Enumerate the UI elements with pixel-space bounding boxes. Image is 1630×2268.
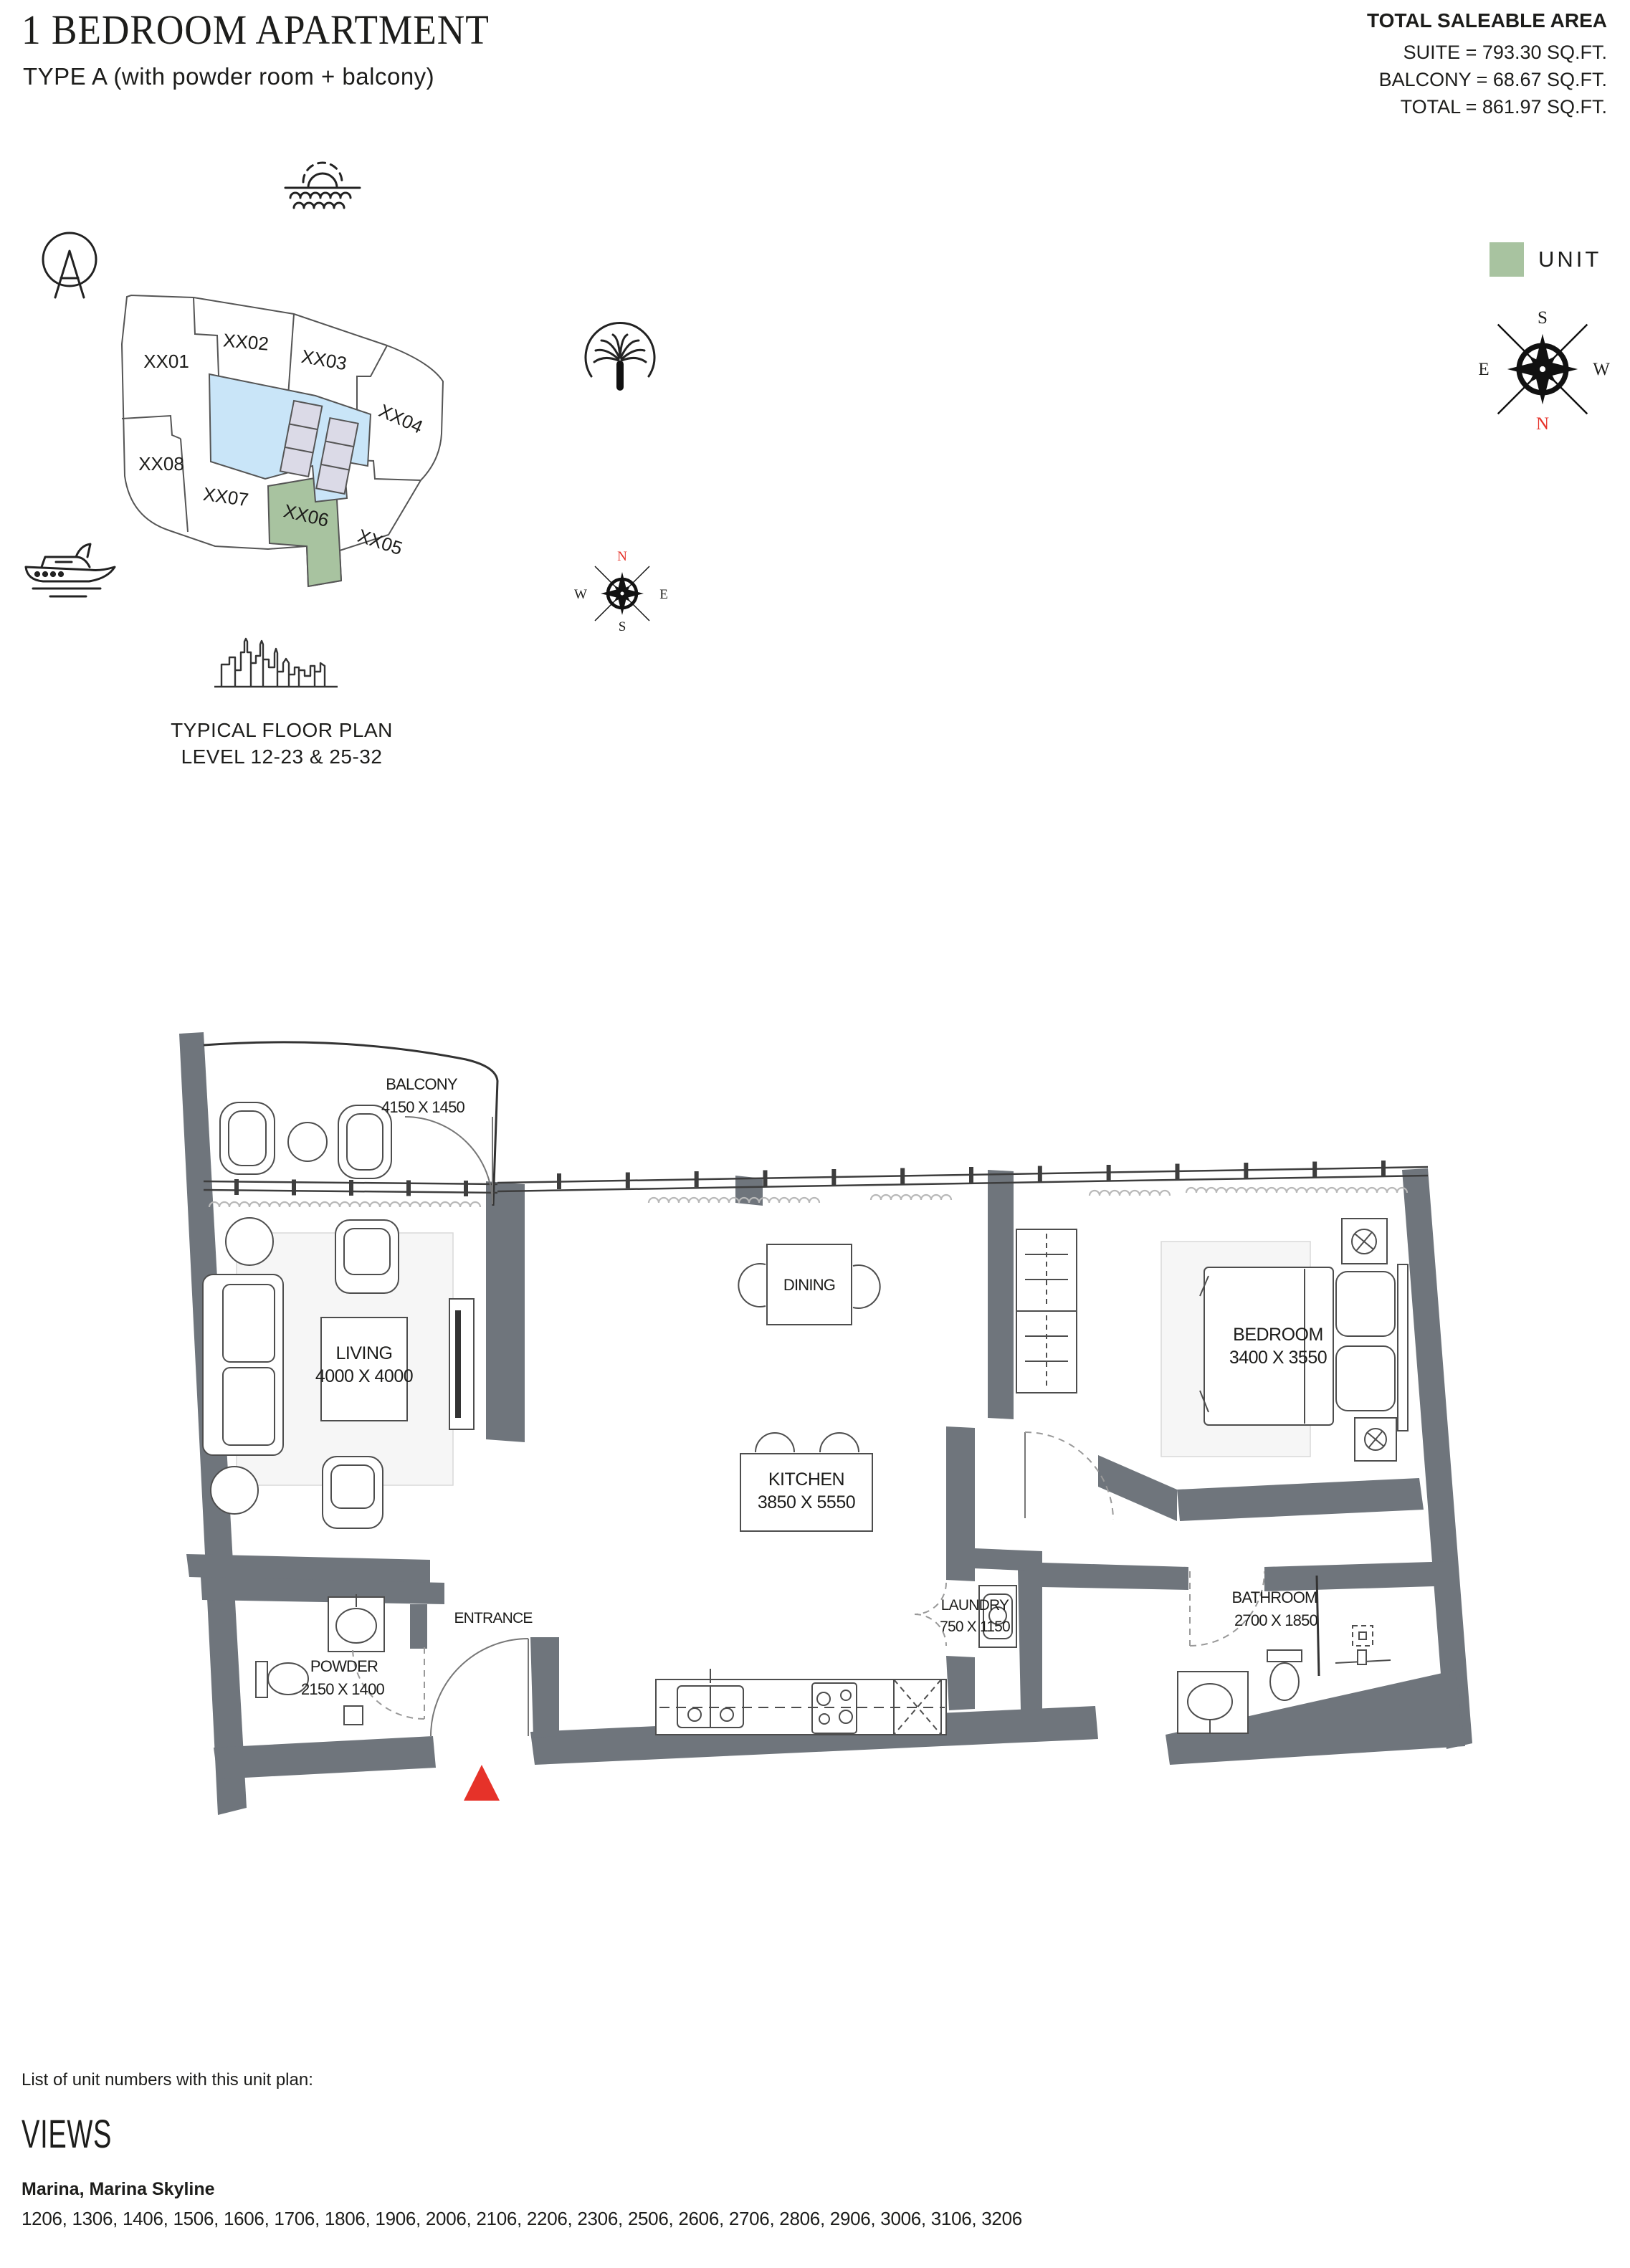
shower-drain (1353, 1626, 1373, 1646)
palm-island-icon (586, 323, 654, 391)
laundry: LAUNDRY 750 X 1150 (915, 1583, 1016, 1647)
insulation-squiggle (649, 1198, 819, 1203)
yacht-icon (26, 544, 115, 596)
views-heading: VIEWS (22, 2110, 112, 2157)
room-dims-powder: 2150 X 1400 (301, 1680, 385, 1698)
skyline-icon (211, 634, 340, 692)
insulation-squiggle (1186, 1188, 1407, 1193)
area-balcony: BALCONY = 68.67 SQ.FT. (1367, 66, 1607, 93)
sunset-icon (285, 163, 360, 208)
entrance-door-swing (431, 1639, 528, 1736)
compass-small-top: N (617, 549, 627, 564)
compass-small-right: E (659, 587, 668, 602)
caption-line-2: LEVEL 12-23 & 25-32 (106, 743, 457, 770)
area-suite: SUITE = 793.30 SQ.FT. (1367, 39, 1607, 66)
insulation-squiggle (871, 1195, 951, 1200)
bar-stool (756, 1433, 794, 1452)
floorplan-brochure-page: { "header": { "title": "1 BEDROOM APARTM… (0, 0, 1630, 2268)
key-plan-label-xx02: XX02 (222, 329, 270, 354)
unit-legend-swatch (1490, 242, 1524, 277)
insulation-squiggle (209, 1202, 480, 1207)
key-plan-label-xx08: XX08 (138, 453, 184, 475)
laundry-bifold-door (915, 1583, 946, 1646)
headboard (1398, 1264, 1408, 1431)
bar-stool (820, 1433, 859, 1452)
tv-console (449, 1299, 474, 1429)
dining-chair (738, 1264, 766, 1307)
bathroom-door-swing (1190, 1571, 1264, 1646)
room-label-bedroom: BEDROOM (1233, 1325, 1323, 1345)
saleable-area-block: TOTAL SALEABLE AREA SUITE = 793.30 SQ.FT… (1367, 7, 1607, 120)
entrance-marker-triangle (464, 1765, 500, 1801)
room-dims-kitchen: 3850 X 5550 (758, 1492, 855, 1512)
area-heading: TOTAL SALEABLE AREA (1367, 7, 1607, 34)
window-mullions-main (559, 1161, 1383, 1189)
room-label-balcony: BALCONY (386, 1075, 458, 1093)
armchair (335, 1220, 399, 1293)
key-plan-building: XX01 XX02 XX03 XX04 XX05 XX06 XX07 XX08 (122, 295, 443, 586)
kitchen: KITCHEN 3850 X 5550 (656, 1433, 946, 1735)
room-label-powder: POWDER (310, 1657, 378, 1675)
tv-screen (455, 1310, 461, 1418)
key-plan-label-xx01: XX01 (143, 351, 189, 372)
dining-chair (853, 1265, 880, 1308)
side-table (211, 1467, 258, 1514)
compass-main-top: S (1538, 308, 1548, 328)
caption-line-1: TYPICAL FLOOR PLAN (106, 717, 457, 743)
powder-toilet-tank (256, 1662, 267, 1697)
room-dims-living: 4000 X 4000 (315, 1366, 413, 1386)
powder-room: POWDER 2150 X 1400 (256, 1594, 424, 1725)
living-room: LIVING 4000 X 4000 (203, 1218, 474, 1528)
page-subtitle: TYPE A (with powder room + balcony) (23, 63, 434, 90)
shower-head (1358, 1650, 1366, 1664)
room-label-kitchen: KITCHEN (768, 1469, 844, 1490)
key-plan-label-xx05: XX05 (355, 525, 405, 559)
room-label-living: LIVING (336, 1343, 393, 1363)
page-title: 1 BEDROOM APARTMENT (22, 6, 490, 54)
balcony-table (288, 1123, 327, 1161)
key-plan-caption: TYPICAL FLOOR PLAN LEVEL 12-23 & 25-32 (106, 717, 457, 770)
entrance: ENTRANCE (431, 1610, 533, 1801)
key-plan-label-xx07: XX07 (202, 483, 250, 511)
insulation-squiggle (1090, 1191, 1170, 1196)
room-dims-balcony: 4150 X 1450 (381, 1098, 465, 1116)
room-label-dining: DINING (783, 1276, 835, 1294)
dining-area: DINING (738, 1244, 880, 1325)
key-plan-label-xx03: XX03 (300, 346, 348, 375)
unit-legend: UNIT (1490, 242, 1601, 277)
compass-small-left: W (574, 587, 587, 602)
key-plan: XX01 XX02 XX03 XX04 XX05 XX06 XX07 XX08 (0, 129, 688, 645)
compass-main-left: E (1478, 360, 1489, 379)
room-dims-bedroom: 3400 X 3550 (1229, 1348, 1327, 1368)
ferris-wheel-icon (43, 233, 96, 297)
toilet-tank (1267, 1650, 1302, 1662)
room-label-laundry: LAUNDRY (941, 1597, 1009, 1614)
compass-main-right: W (1593, 360, 1610, 379)
room-label-entrance: ENTRANCE (454, 1610, 533, 1626)
compass-main-bottom: N (1536, 414, 1549, 434)
bedroom: BEDROOM 3400 X 3550 (1161, 1219, 1408, 1461)
balcony: BALCONY 4150 X 1450 (220, 1075, 492, 1204)
compass-rose-small: N W E S (574, 549, 668, 634)
toilet (1270, 1663, 1299, 1700)
bed (1204, 1267, 1333, 1425)
views-list: Marina, Marina Skyline (22, 2179, 215, 2200)
bedroom-closet (1016, 1229, 1077, 1393)
side-table (226, 1218, 273, 1265)
floor-plan: BALCONY 4150 X 1450 LIVING 4000 X 4000 D… (129, 989, 1534, 1864)
compass-rose-main: S E W N (1462, 297, 1624, 444)
compass-small-bottom: S (619, 619, 626, 634)
pillow (1336, 1272, 1395, 1336)
room-dims-laundry: 750 X 1150 (940, 1619, 1010, 1635)
footer-note: List of unit numbers with this unit plan… (22, 2070, 313, 2090)
unit-legend-label: UNIT (1538, 247, 1601, 272)
key-plan-label-xx04: XX04 (376, 399, 426, 437)
unit-numbers-list: 1206, 1306, 1406, 1506, 1606, 1706, 1806… (22, 2208, 1022, 2230)
area-total: TOTAL = 861.97 SQ.FT. (1367, 93, 1607, 120)
room-dims-bathroom: 2700 X 1850 (1234, 1611, 1318, 1629)
pillow (1336, 1346, 1395, 1411)
sofa (203, 1274, 283, 1455)
room-label-bathroom: BATHROOM (1231, 1588, 1317, 1606)
